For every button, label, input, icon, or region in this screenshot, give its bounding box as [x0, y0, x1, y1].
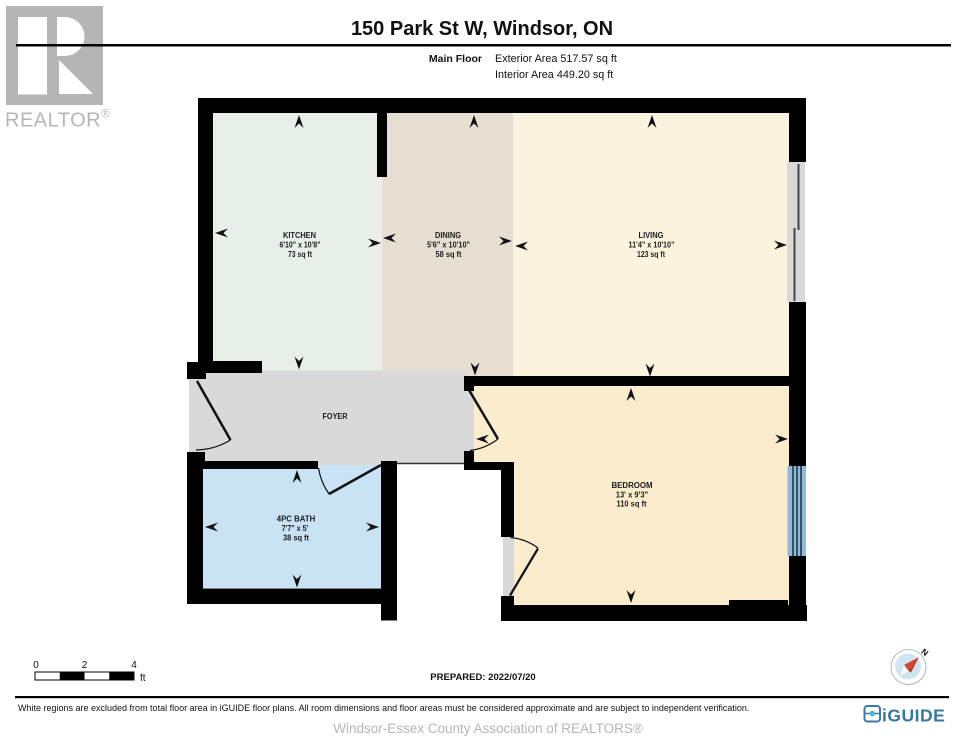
svg-text:Interior Area 449.20 sq ft: Interior Area 449.20 sq ft [495, 69, 613, 81]
svg-text:123 sq ft: 123 sq ft [637, 249, 665, 259]
svg-text:150 Park St W, Windsor, ON: 150 Park St W, Windsor, ON [351, 18, 613, 40]
svg-text:PREPARED: 2022/07/20: PREPARED: 2022/07/20 [430, 672, 535, 683]
svg-text:4: 4 [131, 660, 137, 671]
svg-text:Exterior Area 517.57 sq ft: Exterior Area 517.57 sq ft [495, 53, 617, 65]
svg-text:110 sq ft: 110 sq ft [617, 499, 647, 509]
svg-text:DINING: DINING [435, 230, 461, 240]
svg-text:73 sq ft: 73 sq ft [288, 249, 312, 259]
svg-text:0: 0 [33, 660, 39, 671]
svg-text:11'4" x 10'10": 11'4" x 10'10" [629, 240, 675, 250]
svg-text:5'6" x 10'10": 5'6" x 10'10" [427, 240, 470, 250]
svg-text:Main Floor: Main Floor [429, 53, 482, 65]
svg-text:38 sq ft: 38 sq ft [283, 533, 309, 543]
svg-text:2: 2 [82, 660, 88, 671]
svg-text:White regions are excluded fro: White regions are excluded from total fl… [18, 703, 749, 713]
svg-text:4PC BATH: 4PC BATH [277, 514, 316, 524]
svg-text:iGUIDE: iGUIDE [882, 706, 945, 726]
svg-text:KITCHEN: KITCHEN [283, 230, 316, 240]
svg-text:Windsor-Essex County Associati: Windsor-Essex County Association of REAL… [333, 721, 643, 736]
svg-text:LIVING: LIVING [639, 230, 664, 240]
svg-text:REALTOR®: REALTOR® [5, 107, 110, 132]
svg-text:58 sq ft: 58 sq ft [436, 249, 462, 259]
svg-text:7'7" x 5': 7'7" x 5' [282, 523, 309, 533]
svg-text:6'10" x 10'8": 6'10" x 10'8" [280, 240, 321, 250]
svg-text:ft: ft [140, 673, 146, 684]
svg-text:FOYER: FOYER [323, 411, 349, 421]
